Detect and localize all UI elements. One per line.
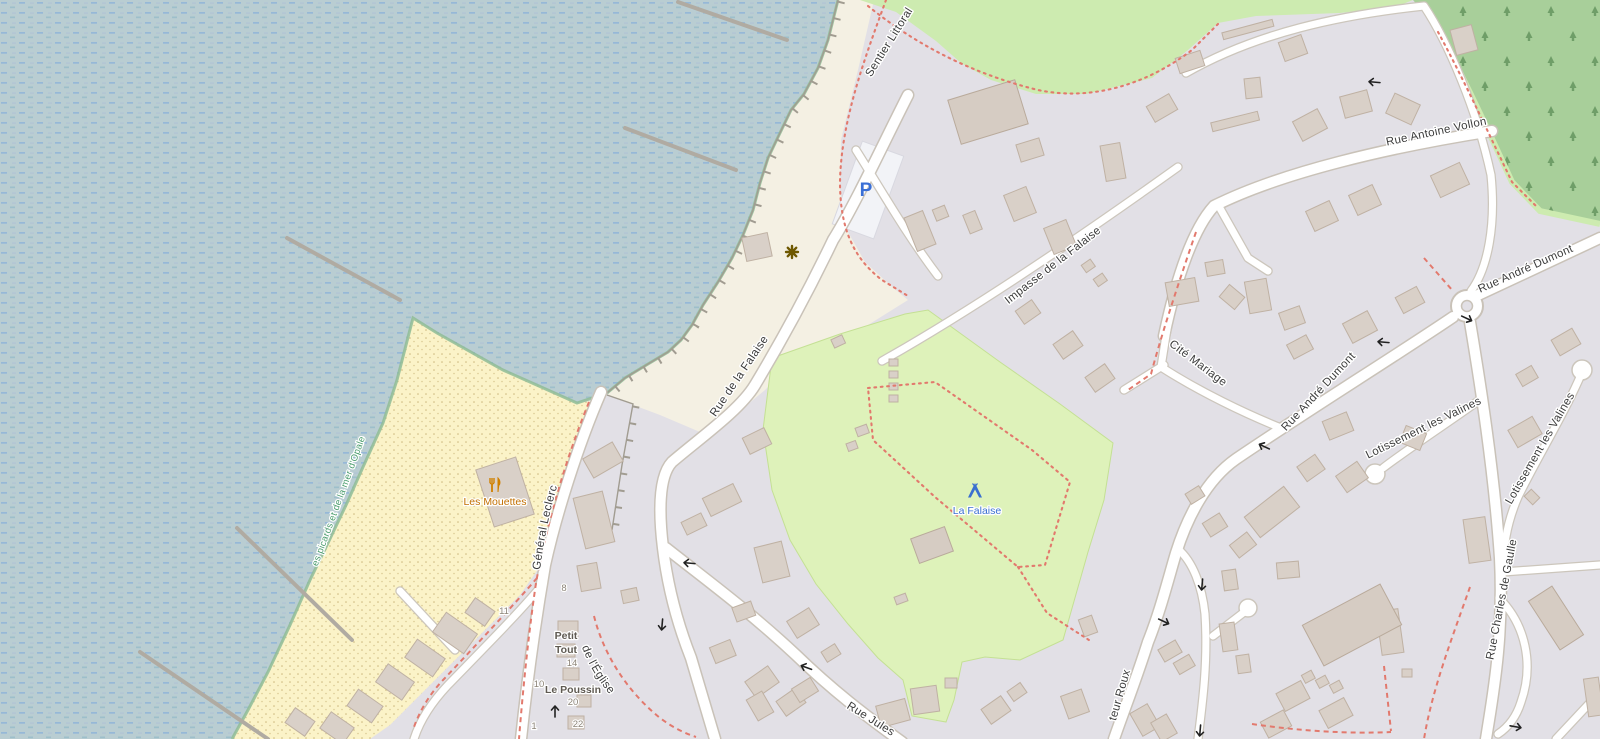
building — [1236, 654, 1251, 674]
restaurant-label: Les Mouettes — [463, 496, 526, 508]
house-number: 1 — [531, 721, 536, 732]
place-label: Tout — [555, 644, 577, 656]
building — [1222, 569, 1239, 591]
attraction-icon — [786, 246, 798, 258]
building — [889, 359, 898, 366]
campsite-label: La Falaise — [953, 505, 1002, 517]
building — [889, 395, 898, 402]
house-number: 22 — [573, 719, 584, 730]
map-canvas[interactable]: P Sentier Littoral Rue Antoine Vollon Im… — [0, 0, 1600, 739]
building — [577, 562, 601, 591]
place-label: Le Poussin — [545, 684, 601, 696]
building — [1244, 77, 1262, 99]
house-number: 20 — [568, 697, 579, 708]
building — [1205, 260, 1225, 277]
building — [563, 668, 579, 680]
building — [621, 587, 639, 603]
building — [1276, 561, 1299, 579]
building — [577, 695, 591, 707]
building — [742, 233, 772, 262]
building — [1165, 278, 1199, 307]
house-number: 10 — [534, 679, 545, 690]
house-number: 14 — [567, 658, 578, 669]
house-number: 8 — [561, 583, 566, 594]
building — [945, 678, 957, 688]
building — [889, 371, 898, 378]
house-number: 11 — [499, 606, 509, 617]
parking-icon: P — [860, 180, 873, 201]
building — [1402, 669, 1412, 677]
building — [1219, 622, 1238, 652]
place-label: Petit — [555, 630, 578, 642]
building — [910, 685, 939, 714]
